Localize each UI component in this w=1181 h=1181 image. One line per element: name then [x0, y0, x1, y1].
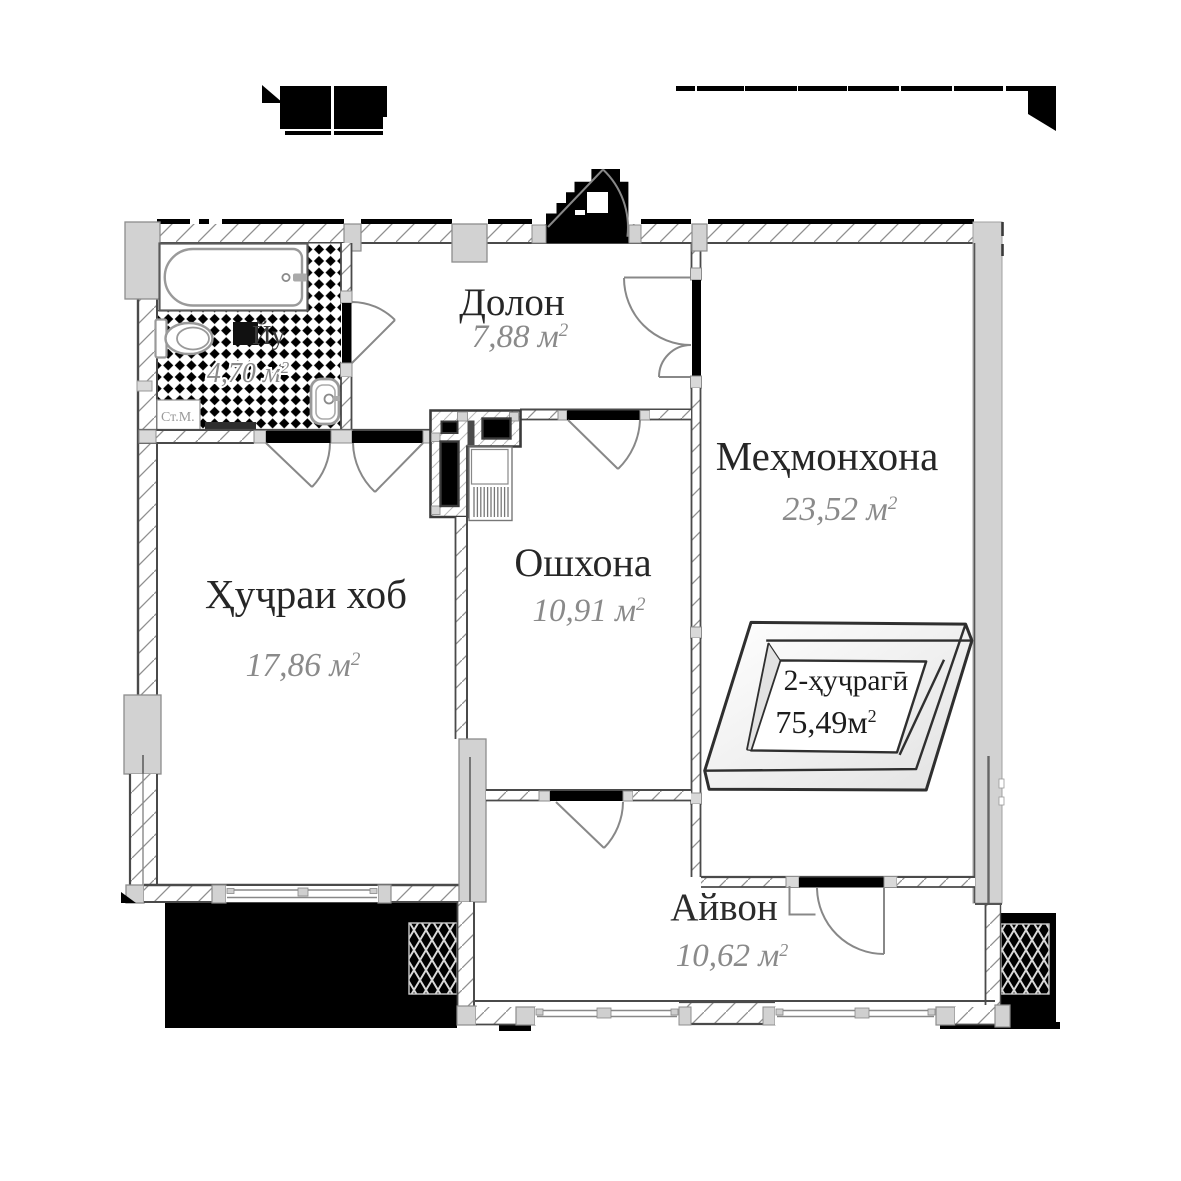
svg-text:Меҳмонхона: Меҳмонхона: [716, 433, 939, 479]
svg-text:17,86 м2: 17,86 м2: [246, 647, 361, 684]
svg-text:2-ҳуҷрагӣ: 2-ҳуҷрагӣ: [784, 665, 909, 697]
svg-text:Ст.М.: Ст.М.: [161, 410, 195, 425]
svg-text:Долон: Долон: [459, 281, 564, 324]
svg-text:10,91 м2: 10,91 м2: [532, 593, 646, 629]
svg-text:Йу: Йу: [252, 320, 285, 350]
svg-text:Ҳуҷраи хоб: Ҳуҷраи хоб: [205, 571, 407, 617]
svg-text:Айвон: Айвон: [670, 886, 778, 929]
svg-text:4,70 м2: 4,70 м2: [207, 358, 290, 389]
svg-text:75,49м2: 75,49м2: [775, 704, 876, 740]
svg-text:23,52 м2: 23,52 м2: [783, 491, 898, 528]
svg-text:10,62 м2: 10,62 м2: [676, 938, 789, 974]
svg-text:Ошхона: Ошхона: [514, 540, 652, 585]
svg-text:7,88 м2: 7,88 м2: [472, 319, 569, 355]
